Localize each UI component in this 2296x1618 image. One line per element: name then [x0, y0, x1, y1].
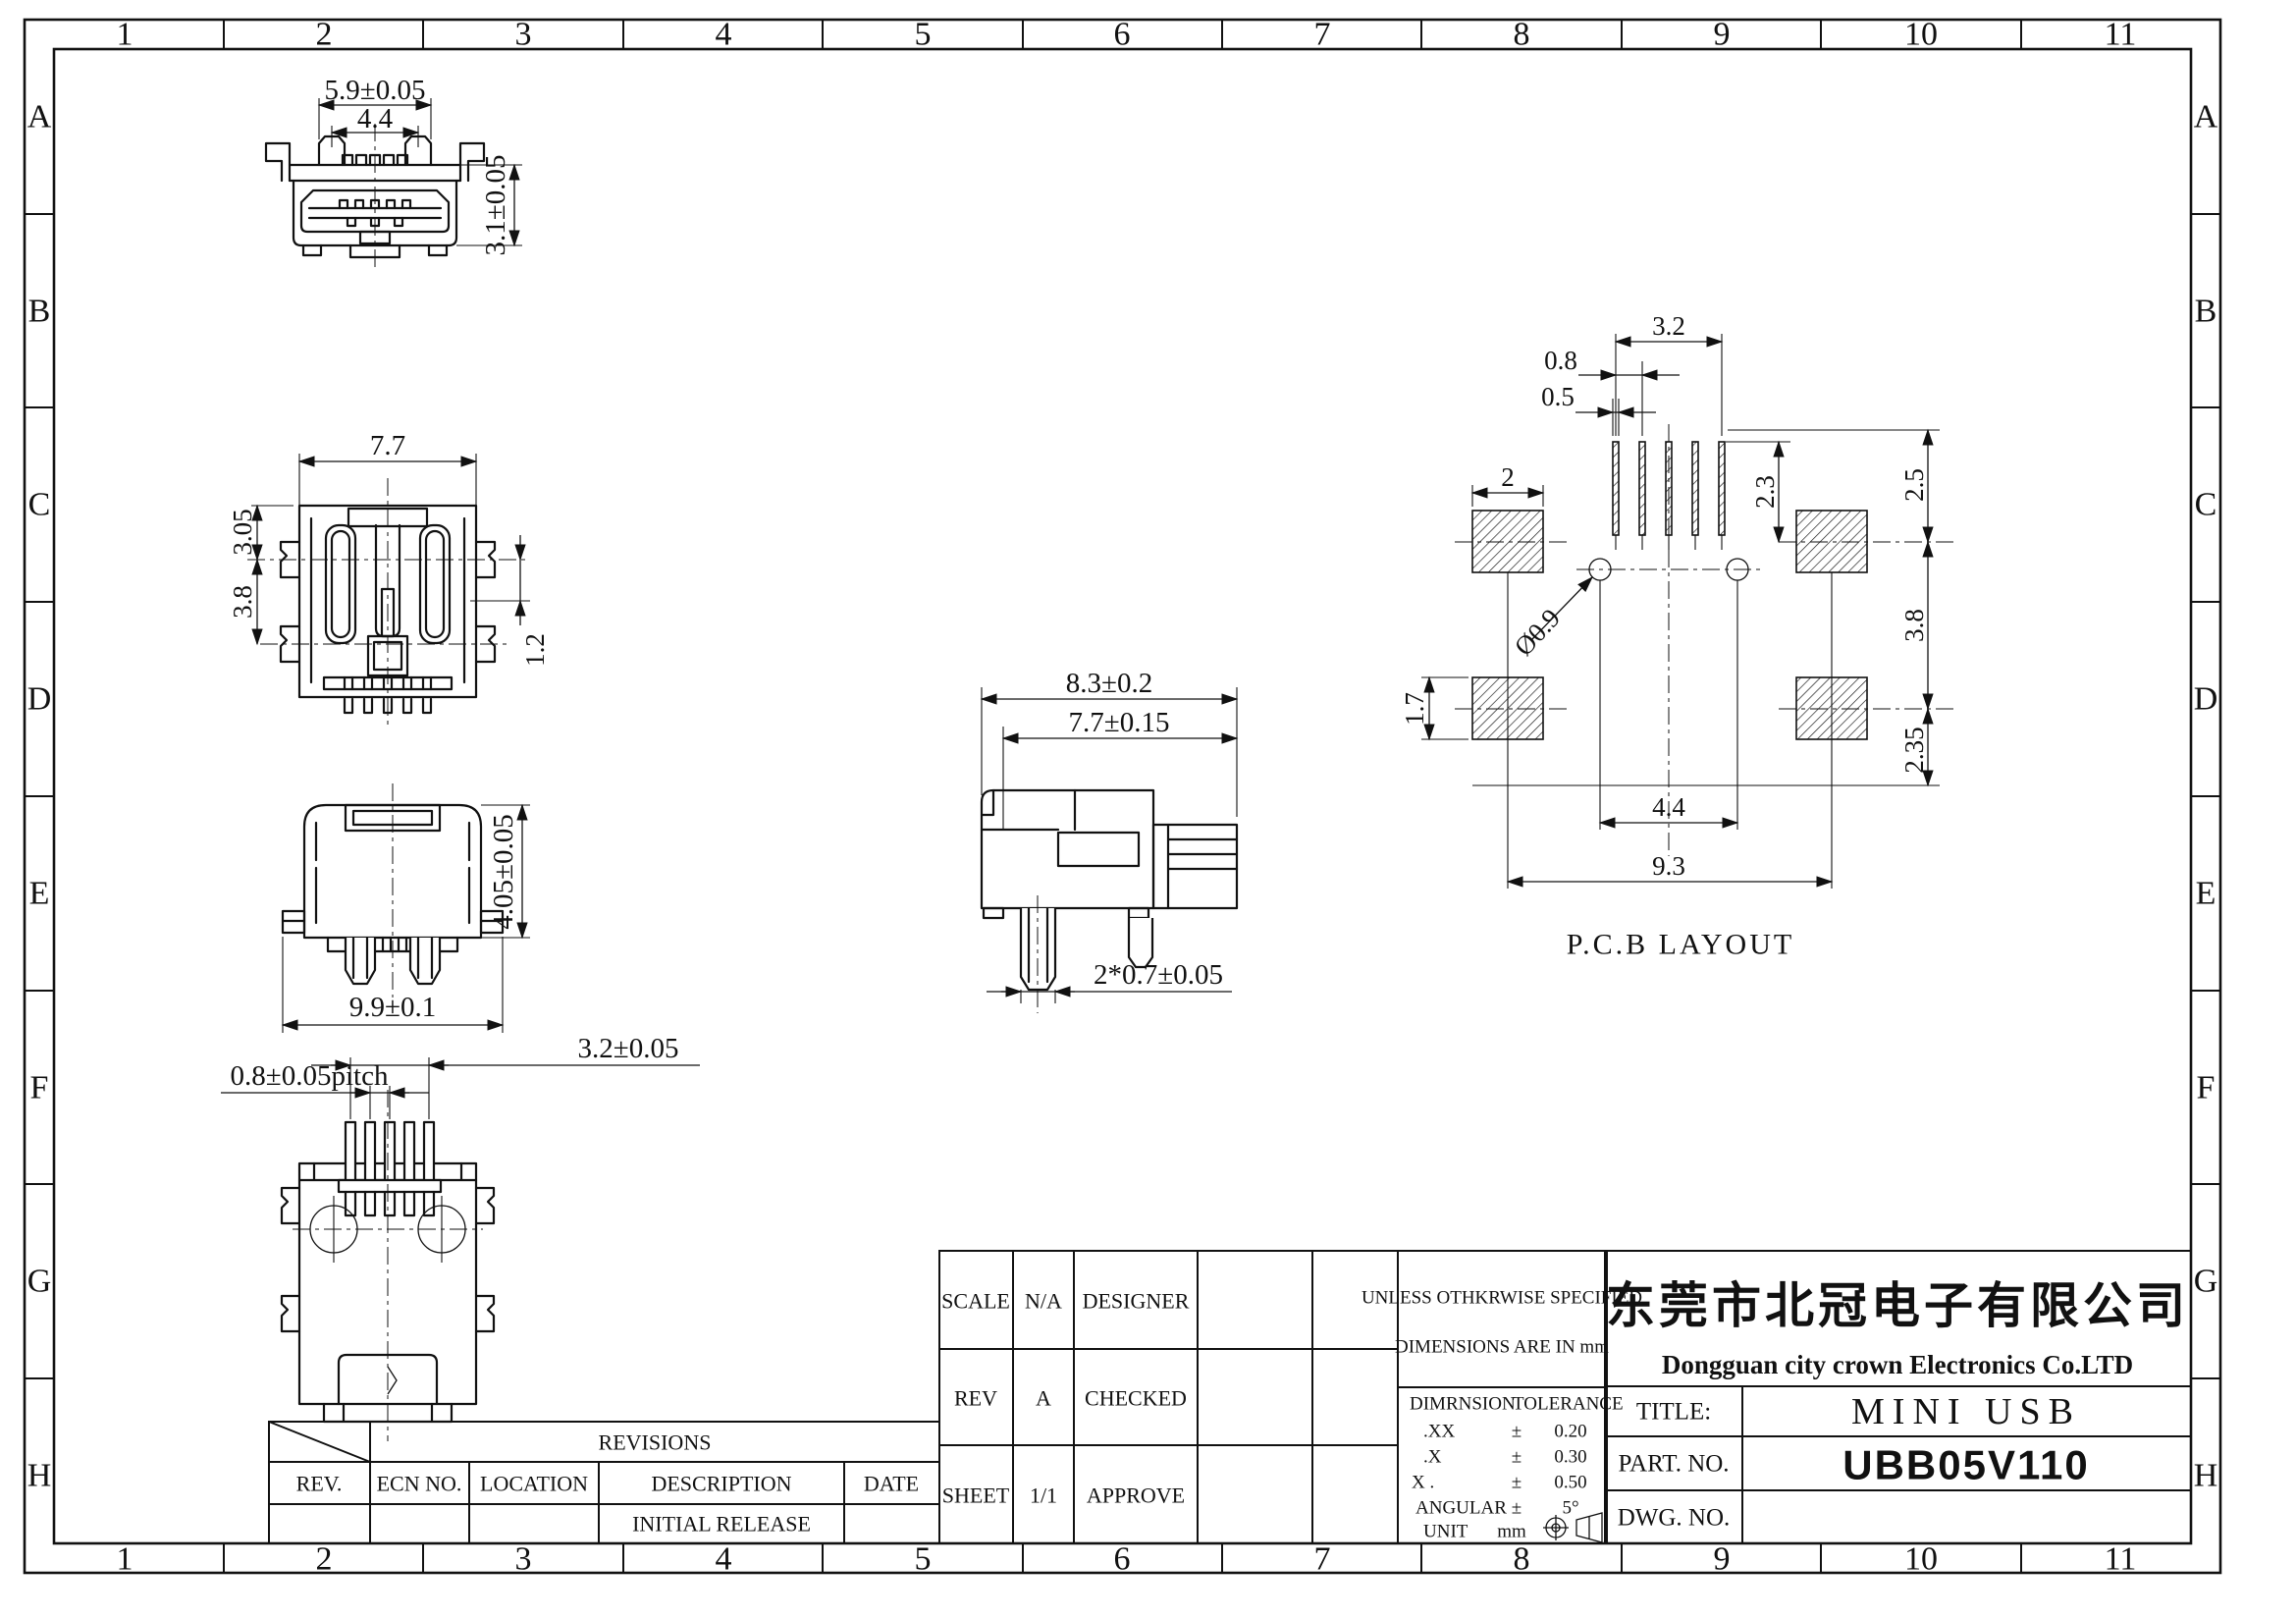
rev-label: REV — [954, 1386, 997, 1411]
zone-col-label: 8 — [1514, 17, 1530, 53]
pcb-slot-height-dim: 2.3 — [1750, 475, 1780, 509]
zone-row-label: E — [2196, 876, 2216, 912]
zone-row-label: C — [28, 487, 51, 523]
tolerance-r3-dim: X . — [1412, 1473, 1434, 1493]
pcb-hole-dia-dim: Ø0.9 — [1509, 603, 1566, 661]
pcb-pads-dim: 9.3 — [1652, 851, 1685, 881]
zone-row-label: F — [2197, 1070, 2216, 1106]
zone-col-label: 7 — [1314, 17, 1331, 53]
title-value: MINI USB — [1851, 1391, 2081, 1432]
back-view: 4.05±0.05 9.9±0.1 — [283, 783, 530, 1033]
top-upper-dim: 3.05 — [228, 509, 257, 555]
revisions-col-rev: REV. — [296, 1472, 343, 1496]
zone-col-label: 1 — [117, 17, 133, 53]
tolerance-r4-sign: ± — [1512, 1498, 1522, 1519]
front-height-dim: 3.1±0.05 — [480, 155, 511, 256]
top-width-dim: 7.7 — [370, 430, 405, 461]
drawing-canvas: 1 2 3 4 5 6 7 8 9 10 11 1 2 3 4 5 6 7 8 … — [0, 0, 2296, 1618]
dwg-no-label: DWG. NO. — [1618, 1505, 1731, 1532]
bottom-pitch-dim: 0.8±0.05pitch — [231, 1060, 389, 1092]
zone-row-label: B — [2195, 294, 2217, 330]
revisions-title: REVISIONS — [599, 1430, 712, 1455]
zone-col-label: 3 — [515, 1541, 532, 1578]
back-height-dim: 4.05±0.05 — [488, 814, 519, 929]
pcb-span-dim: 3.2 — [1652, 311, 1685, 341]
zone-row-label: H — [2194, 1458, 2218, 1494]
sheet-value: 1/1 — [1030, 1483, 1057, 1508]
zone-col-label: 5 — [915, 1541, 932, 1578]
zone-col-label: 4 — [716, 17, 732, 53]
tolerance-header-dimension: DIMRNSION — [1410, 1394, 1516, 1415]
part-no-label: PART. NO. — [1618, 1451, 1729, 1478]
zone-col-label: 10 — [1904, 17, 1938, 53]
zone-col-label: 10 — [1904, 1541, 1938, 1578]
zone-row-label: F — [30, 1070, 49, 1106]
side-legs-dim: 2*0.7±0.05 — [1094, 959, 1223, 991]
zone-col-label: 2 — [316, 1541, 333, 1578]
title-block: 东莞市北冠电子有限公司 Dongguan city crown Electron… — [1605, 1251, 2191, 1543]
top-right-dim: 1.2 — [520, 633, 550, 667]
checked-label: CHECKED — [1085, 1386, 1187, 1411]
tolerance-note-1: UNLESS OTHKRWISE SPECIFIED — [1362, 1288, 1642, 1309]
zone-row-label: B — [28, 294, 51, 330]
sheet-label: SHEET — [942, 1483, 1010, 1508]
top-lower-dim: 3.8 — [228, 585, 257, 619]
tolerance-r5-val: mm — [1497, 1522, 1526, 1542]
tolerance-r1-dim: .XX — [1423, 1422, 1455, 1442]
tolerance-r3-sign: ± — [1512, 1473, 1522, 1493]
back-width-dim: 9.9±0.1 — [349, 992, 436, 1023]
top-view: 7.7 3.05 3.8 — [228, 430, 550, 728]
zone-row-label: G — [27, 1264, 52, 1300]
tolerance-r2-sign: ± — [1512, 1447, 1522, 1468]
pcb-pad-height-dim: 1.7 — [1400, 692, 1429, 726]
zone-col-label: 7 — [1314, 1541, 1331, 1578]
tolerance-r4-val: 5° — [1562, 1498, 1578, 1519]
sheet-border — [25, 20, 2220, 1573]
info-table: SCALE N/A DESIGNER REV A CHECKED SHEET 1… — [939, 1251, 1398, 1543]
zone-labels-top: 1 2 3 4 5 6 7 8 9 10 11 — [117, 17, 2137, 53]
company-name-cn: 东莞市北冠电子有限公司 — [1606, 1278, 2189, 1333]
front-width-dim: 5.9±0.05 — [325, 75, 426, 106]
company-name-en: Dongguan city crown Electronics Co.LTD — [1662, 1350, 2133, 1379]
engineering-drawing-sheet: 1 2 3 4 5 6 7 8 9 10 11 1 2 3 4 5 6 7 8 … — [0, 0, 2296, 1618]
zone-row-label: G — [2194, 1264, 2218, 1300]
tolerance-r4-dim: ANGULAR — [1415, 1498, 1507, 1519]
pcb-pad-width-dim: 2 — [1501, 462, 1515, 492]
tolerance-header-tolerance: TOLERANCE — [1513, 1394, 1624, 1415]
pcb-layout-view: 3.2 0.8 0.5 2 1.7 Ø0.9 — [1400, 311, 1953, 961]
tolerance-r1-sign: ± — [1512, 1422, 1522, 1442]
pcb-rows-dim: 3.8 — [1899, 609, 1929, 642]
pcb-layout-title: P.C.B LAYOUT — [1567, 929, 1794, 961]
revisions-table: REVISIONS REV. ECN NO. LOCATION DESCRIPT… — [269, 1422, 939, 1543]
zone-col-label: 6 — [1114, 17, 1131, 53]
zone-row-label: A — [27, 99, 52, 135]
tolerance-note-2: DIMENSIONS ARE IN mm — [1395, 1337, 1609, 1358]
zone-col-label: 11 — [2105, 1541, 2137, 1578]
bottom-view: 3.2±0.05 0.8±0.05pitch — [221, 1033, 700, 1441]
zone-col-label: 1 — [117, 1541, 133, 1578]
revisions-col-date: DATE — [864, 1472, 919, 1496]
tolerance-r3-val: 0.50 — [1554, 1473, 1586, 1493]
rev-value: A — [1036, 1386, 1051, 1411]
tolerance-block: UNLESS OTHKRWISE SPECIFIED DIMENSIONS AR… — [1362, 1251, 1642, 1543]
zone-col-label: 3 — [515, 17, 532, 53]
pcb-pitch-dim: 0.8 — [1544, 346, 1577, 375]
pcb-slot-dim: 0.5 — [1541, 382, 1575, 411]
zone-row-label: D — [2194, 681, 2218, 718]
bottom-span-dim: 3.2±0.05 — [578, 1033, 679, 1064]
scale-value: N/A — [1025, 1289, 1062, 1314]
pcb-bottom-dim: 2.35 — [1899, 727, 1929, 773]
title-label: TITLE: — [1636, 1399, 1711, 1426]
approve-label: APPROVE — [1087, 1483, 1185, 1508]
zone-row-label: E — [29, 876, 50, 912]
front-view: 5.9±0.05 4.4 3.1±0.05 — [266, 75, 522, 269]
zone-row-label: H — [27, 1458, 52, 1494]
zone-row-label: A — [2194, 99, 2218, 135]
designer-label: DESIGNER — [1083, 1289, 1190, 1314]
tolerance-r1-val: 0.20 — [1554, 1422, 1586, 1442]
pcb-holes-dim: 4.4 — [1652, 792, 1685, 822]
tolerance-r2-val: 0.30 — [1554, 1447, 1586, 1468]
zone-col-label: 2 — [316, 17, 333, 53]
zone-col-label: 8 — [1514, 1541, 1530, 1578]
zone-row-label: C — [2195, 487, 2217, 523]
zone-col-label: 11 — [2105, 17, 2137, 53]
zone-col-label: 9 — [1714, 1541, 1731, 1578]
zone-col-label: 9 — [1714, 17, 1731, 53]
zone-col-label: 4 — [716, 1541, 732, 1578]
part-no-value: UBB05V110 — [1842, 1442, 2089, 1488]
revisions-col-ecn: ECN NO. — [377, 1472, 462, 1496]
pcb-top-gap-dim: 2.5 — [1899, 468, 1929, 502]
scale-label: SCALE — [941, 1289, 1010, 1314]
tolerance-r5-dim: UNIT — [1423, 1522, 1468, 1542]
revisions-col-description: DESCRIPTION — [651, 1472, 791, 1496]
side-depth-dim: 8.3±0.2 — [1066, 668, 1152, 699]
zone-col-label: 6 — [1114, 1541, 1131, 1578]
side-view: 8.3±0.2 7.7±0.15 2*0.7±0.05 — [982, 668, 1237, 1013]
zone-col-label: 5 — [915, 17, 932, 53]
revisions-col-location: LOCATION — [480, 1472, 588, 1496]
revisions-row-description: INITIAL RELEASE — [632, 1512, 811, 1537]
tolerance-r2-dim: .X — [1423, 1447, 1442, 1468]
zone-row-label: D — [27, 681, 52, 718]
side-inner-depth-dim: 7.7±0.15 — [1069, 707, 1170, 738]
